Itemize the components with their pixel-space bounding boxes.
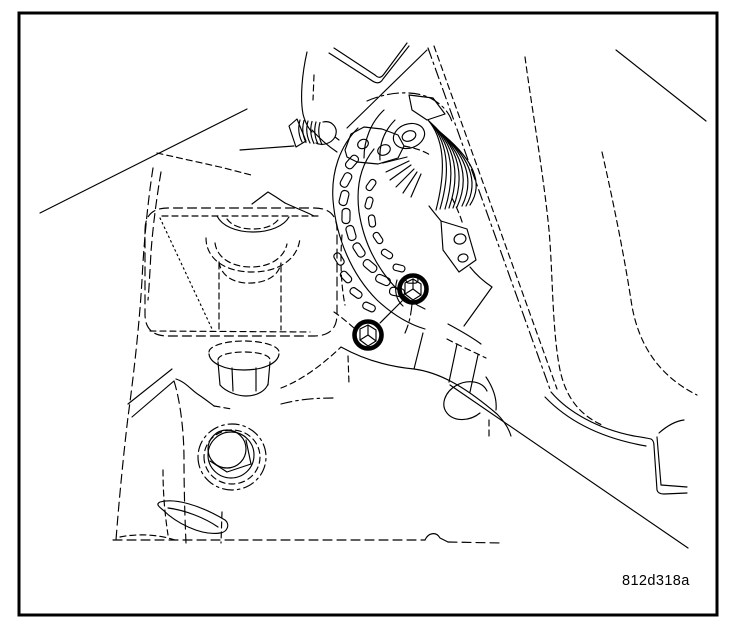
fan-spokes-group [383, 157, 421, 197]
technical-illustration: 812d318a [0, 0, 752, 630]
vent-slots-outer [338, 154, 405, 298]
socket-boss-group [198, 424, 266, 490]
mounting-bolt-highlight-2 [355, 322, 382, 349]
service-manual-page: 812d318a [0, 0, 752, 630]
generator-bracket-group [429, 206, 476, 272]
figure-frame [19, 13, 717, 615]
pillar-lines-group [428, 46, 557, 392]
vent-slots-inner [364, 178, 418, 283]
pulley-group [428, 120, 476, 225]
support-leg-group [120, 369, 232, 543]
figure-code: 812d318a [622, 573, 690, 589]
engine-mount-group [281, 333, 511, 436]
bracket-strip-group [329, 43, 427, 128]
reservoir-group [145, 192, 345, 336]
mounting-bolt-highlight-1 [396, 276, 427, 307]
hex-bolt-group [209, 341, 279, 396]
threaded-bolt-group [289, 52, 339, 152]
cowl-lines-group [40, 109, 294, 540]
